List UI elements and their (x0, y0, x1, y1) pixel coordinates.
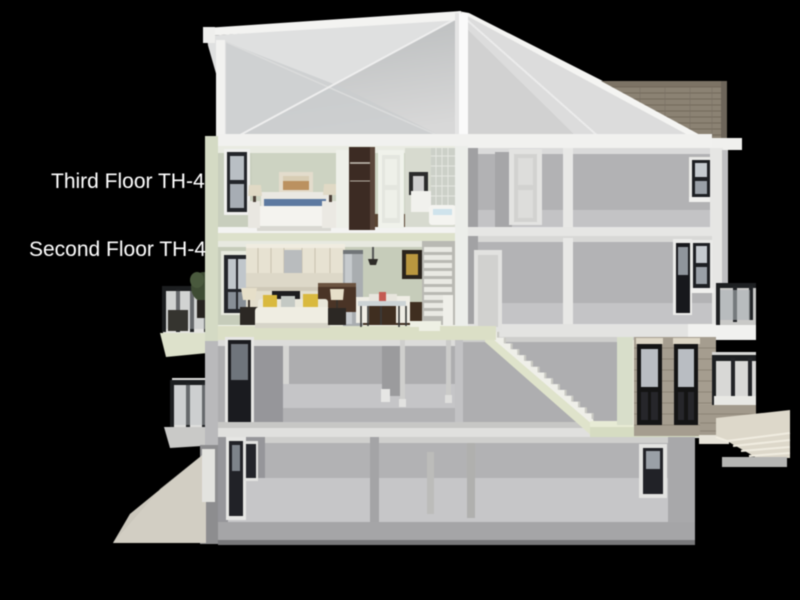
svg-text:Third Floor TH-4: Third Floor TH-4 (51, 170, 205, 193)
svg-text:Second Floor TH-4: Second Floor TH-4 (29, 238, 206, 261)
